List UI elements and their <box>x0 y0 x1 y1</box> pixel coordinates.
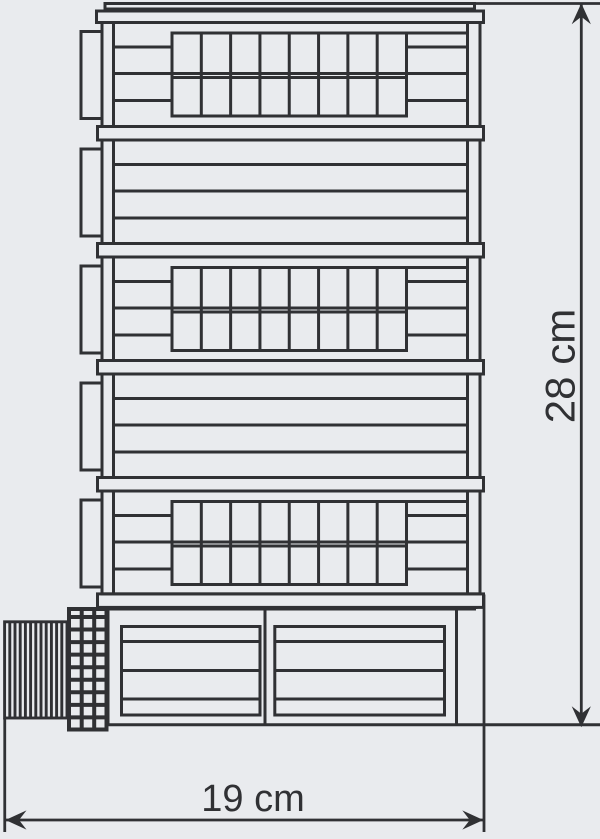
svg-text:28 cm: 28 cm <box>537 309 584 423</box>
svg-text:19 cm: 19 cm <box>201 778 304 820</box>
